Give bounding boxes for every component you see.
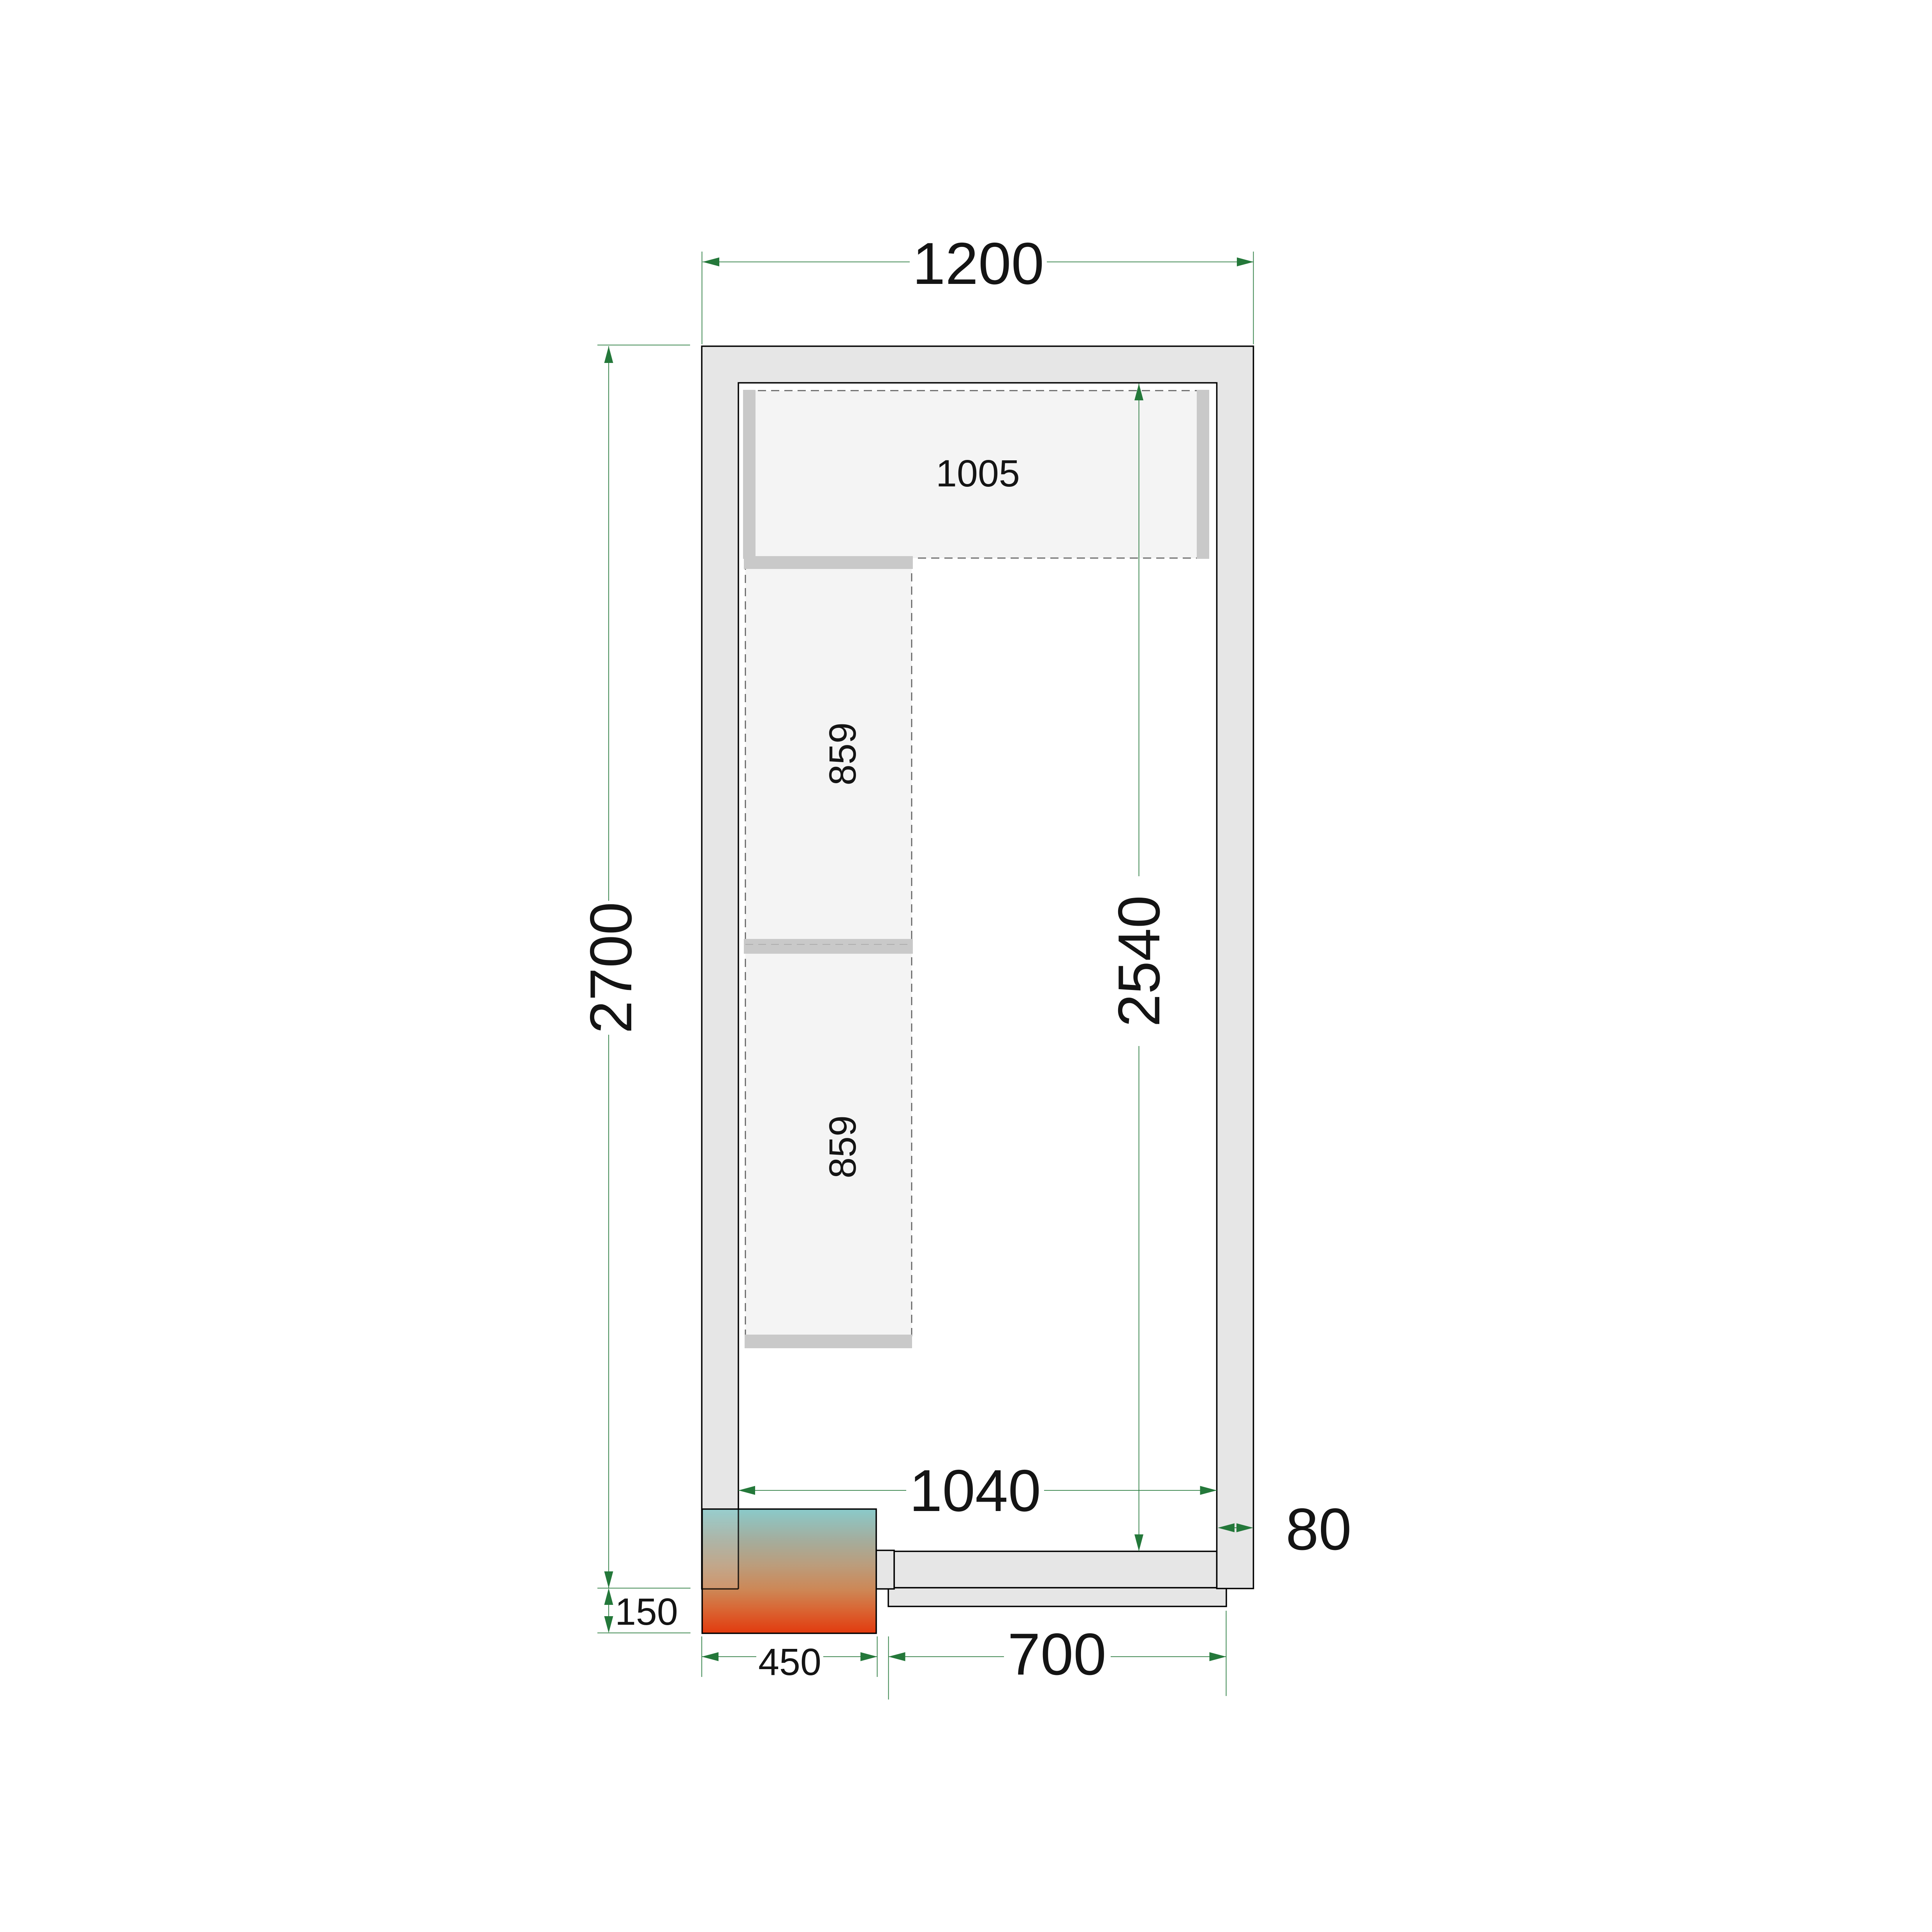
- svg-text:1005: 1005: [936, 452, 1020, 495]
- svg-text:2540: 2540: [1106, 895, 1172, 1027]
- svg-text:859: 859: [821, 722, 864, 785]
- svg-text:1040: 1040: [909, 1458, 1041, 1524]
- svg-text:80: 80: [1286, 1496, 1351, 1562]
- svg-text:1200: 1200: [912, 231, 1044, 297]
- svg-text:450: 450: [758, 1641, 821, 1683]
- svg-text:700: 700: [1007, 1621, 1106, 1687]
- svg-text:150: 150: [615, 1590, 678, 1633]
- svg-text:2700: 2700: [578, 902, 644, 1034]
- svg-text:859: 859: [821, 1115, 864, 1178]
